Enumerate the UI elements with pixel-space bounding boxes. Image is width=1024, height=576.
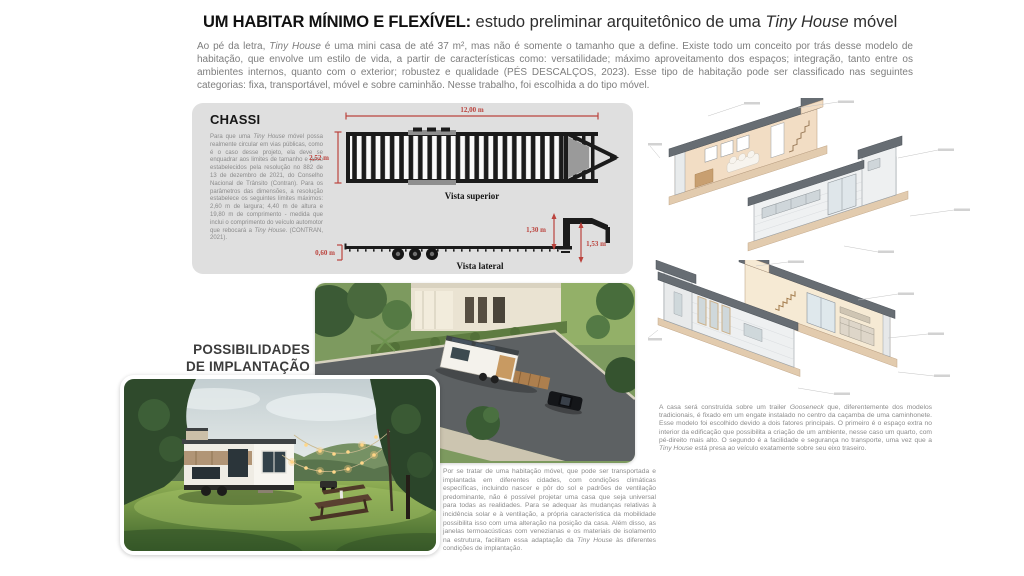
chassi-part1: Para que uma (210, 134, 253, 140)
chassis-technical-drawing: 12,00 m 2,52 m (305, 103, 634, 274)
chassis-top-view (346, 128, 619, 186)
page-title-regular-1: estudo preliminar arquitetônico de uma (471, 13, 765, 31)
page-title-regular-2: móvel (849, 13, 898, 31)
implantacao-heading: POSSIBILIDADES DE IMPLANTAÇÃO (150, 341, 310, 375)
intro-italic: Tiny House (269, 41, 321, 52)
dimension-length: 12,00 m (346, 106, 598, 120)
field-scene (124, 379, 436, 551)
mobility-part1: Por se tratar de uma habitação móvel, qu… (443, 468, 656, 544)
dimension-neck: 1,30 m (526, 213, 556, 250)
svg-text:1,30 m: 1,30 m (526, 226, 546, 234)
svg-text:12,00 m: 12,00 m (460, 106, 484, 114)
gooseneck-part3: está presa ao veículo exatamente sobre s… (693, 445, 867, 452)
intro-part1: Ao pé da letra, (197, 41, 269, 52)
chassi-heading: CHASSI (210, 112, 260, 127)
dimension-width: 2,52 m (309, 132, 341, 183)
chassi-italic1: Tiny House (253, 134, 285, 140)
top-view-label: Vista superior (445, 191, 499, 201)
mobility-paragraph: Por se tratar de uma habitação móvel, qu… (443, 468, 656, 554)
gooseneck-paragraph: A casa será construída sobre um trailer … (659, 404, 932, 453)
axonometric-drawing-lower (648, 260, 1020, 400)
page-title-bold: UM HABITAR MÍNIMO E FLEXÍVEL: (203, 13, 471, 31)
intro-paragraph: Ao pé da letra, Tiny House é uma mini ca… (197, 40, 913, 92)
tiny-house (178, 428, 302, 505)
svg-text:0,60 m: 0,60 m (315, 249, 335, 257)
gooseneck-italic2: Tiny House (659, 445, 693, 452)
svg-text:1,53 m: 1,53 m (586, 240, 606, 248)
chassi-italic2: Tiny House (254, 228, 285, 234)
axonometric-drawing-upper (648, 98, 1020, 256)
chassis-side-view (345, 218, 611, 260)
chassi-panel: CHASSI Para que uma Tiny House móvel pos… (192, 103, 633, 274)
side-view-label: Vista lateral (457, 261, 504, 271)
render-field-meadow (120, 375, 440, 555)
mobility-italic: Tiny House (577, 537, 612, 544)
gooseneck-part1: A casa será construída sobre um trailer (659, 404, 790, 411)
dimension-deck-height: 0,60 m (315, 245, 342, 260)
page-title-italic: Tiny House (765, 13, 848, 31)
gooseneck-italic1: Gooseneck (790, 404, 824, 411)
svg-text:2,52 m: 2,52 m (309, 154, 329, 162)
page-title: UM HABITAR MÍNIMO E FLEXÍVEL: estudo pre… (203, 12, 919, 33)
